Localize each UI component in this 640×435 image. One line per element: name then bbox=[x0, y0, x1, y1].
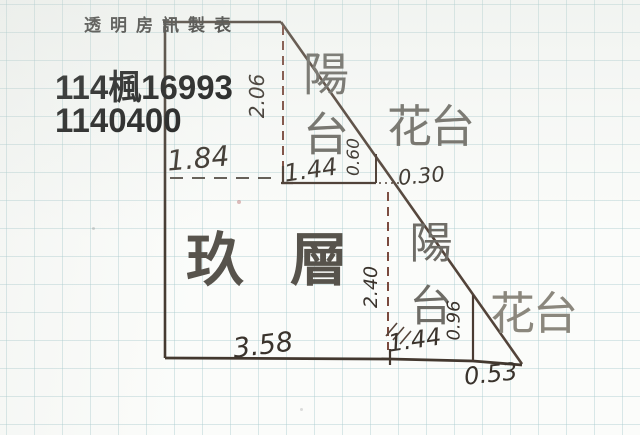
label-flower-box-bottom: 花台 bbox=[490, 291, 576, 336]
measure-flower-top-depth: 0.30 bbox=[397, 162, 446, 190]
case-number-line1: 114楓16993 bbox=[55, 72, 233, 105]
measure-balcony-top-width: 1.44 bbox=[282, 152, 339, 187]
measure-flower-bottom-width: 0.53 bbox=[463, 357, 519, 390]
measure-balcony-top-height: 2.06 bbox=[245, 69, 269, 123]
measure-main-height: 2.40 bbox=[360, 260, 382, 314]
measure-main-width: 3.58 bbox=[231, 326, 294, 364]
scanned-floorplan-page: 透明房訊製表 114楓16993 1140400 陽台 花台 玖層 陽台 花台 … bbox=[0, 0, 640, 435]
case-number-line2: 1140400 bbox=[55, 105, 182, 138]
maker-stamp-text: 透明房訊製表 bbox=[84, 11, 240, 36]
scan-speckle bbox=[92, 227, 95, 230]
measure-upper-width: 1.84 bbox=[166, 139, 231, 177]
measure-flower-bottom-side: 0.96 bbox=[444, 294, 465, 348]
scan-speckle bbox=[237, 200, 241, 204]
measure-balcony-right-width: 1.44 bbox=[386, 322, 443, 357]
measure-flower-top-side: 0.60 bbox=[344, 130, 364, 184]
label-flower-box-top: 花台 bbox=[387, 104, 473, 149]
label-balcony-top: 陽台 bbox=[300, 50, 346, 170]
scan-speckle bbox=[300, 408, 303, 411]
